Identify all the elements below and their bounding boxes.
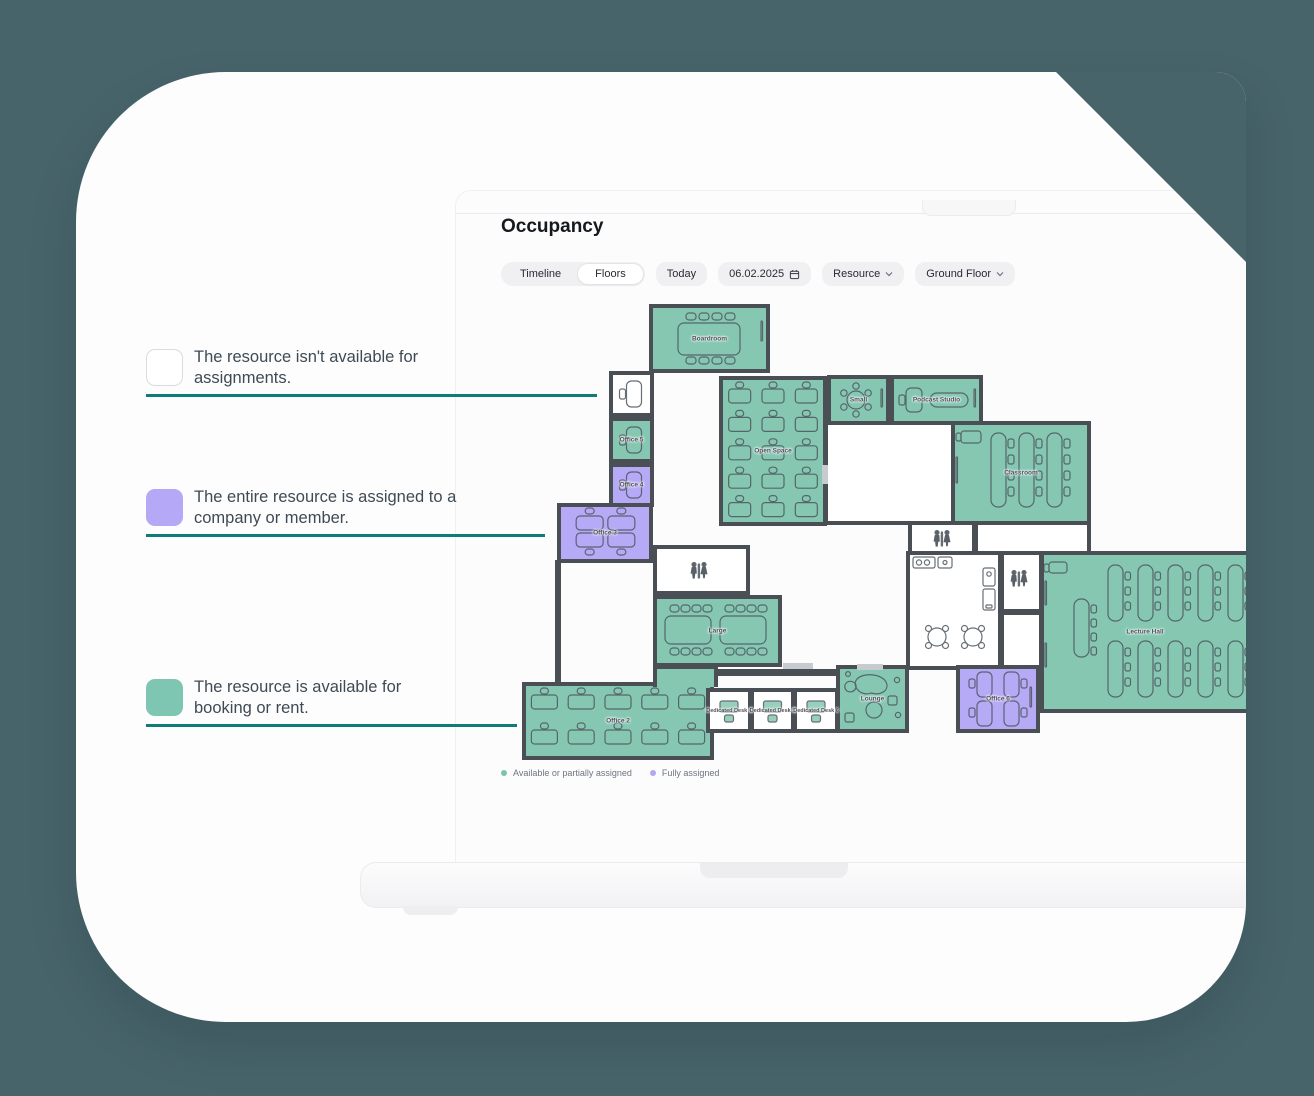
tab-floors[interactable]: Floors [578,264,643,284]
room-wc-1[interactable] [908,521,976,555]
legend-dot-assigned [650,770,656,776]
marketing-card: Occupancy Timeline Floors Today 06.02.20… [76,72,1246,1022]
room-open-space[interactable]: Open Space [719,376,827,526]
calendar-icon [789,269,800,280]
room-room-unavailable[interactable] [609,371,654,417]
room-boardroom[interactable]: Boardroom [649,304,770,373]
pointer-line [146,534,545,537]
today-button[interactable]: Today [656,262,707,286]
laptop-lid-notch [700,863,848,878]
pointer-line [146,394,597,397]
chevron-down-icon [885,270,893,278]
resource-label: Resource [833,268,880,280]
room-office-5[interactable]: Office 5 [609,417,654,463]
room-large[interactable]: Large [653,595,782,667]
date-picker[interactable]: 06.02.2025 [718,262,811,286]
camera-notch [922,200,1016,216]
legend-label: Available or partially assigned [513,768,632,778]
today-label: Today [667,268,696,280]
chevron-down-icon [996,270,1004,278]
room-wc-2[interactable] [1000,551,1043,613]
room-kitchen[interactable] [906,551,1002,670]
annotation-available-text: The resource is available for booking or… [194,677,429,719]
room-podcast-studio[interactable]: Podcast Studio [890,375,983,425]
room-small[interactable]: Small [827,375,890,425]
room-dedicated-desk-4[interactable]: Dedicated Desk 4 [706,688,752,733]
date-value: 06.02.2025 [729,268,784,280]
floor-dropdown[interactable]: Ground Floor [915,262,1015,286]
room-hall-2[interactable] [1000,611,1043,670]
floor-label: Ground Floor [926,268,991,280]
annotation-assigned-text: The entire resource is assigned to a com… [194,487,479,529]
room-lounge[interactable]: Lounge [836,665,909,733]
pointer-line [146,724,517,727]
annotation-unavailable-text: The resource isn't available for assignm… [194,347,439,389]
legend-item-available: Available or partially assigned [501,768,632,778]
room-classroom[interactable]: Classroom [951,421,1091,525]
room-dedicated-desk-6[interactable]: Dedicated Desk 6 [793,688,839,733]
room-stair-link[interactable] [653,665,718,687]
hero-background: Occupancy Timeline Floors Today 06.02.20… [0,0,1314,1096]
toolbar: Timeline Floors Today 06.02.2025 [501,262,1015,286]
resource-dropdown[interactable]: Resource [822,262,904,286]
room-hall-right[interactable] [974,521,1091,555]
legend-item-assigned: Fully assigned [650,768,720,778]
tab-timeline[interactable]: Timeline [503,264,578,284]
room-hall-mid[interactable] [824,421,955,525]
window-top-divider [456,213,1246,214]
legend: Available or partially assigned Fully as… [501,768,719,778]
room-lecture-hall[interactable]: Lecture Hall [1040,551,1246,713]
legend-label: Fully assigned [662,768,720,778]
legend-dot-available [501,770,507,776]
room-office-6[interactable]: Office 6 [956,665,1040,733]
swatch-unavailable [146,349,183,386]
page-title: Occupancy [501,216,603,238]
swatch-available [146,679,183,716]
laptop-foot [403,906,458,915]
room-office-3[interactable]: Office 3 [557,503,653,563]
room-wc-3[interactable] [653,545,750,595]
room-dedicated-desk-5[interactable]: Dedicated Desk 5 [750,688,795,733]
room-office-4[interactable]: Office 4 [609,463,654,507]
swatch-assigned [146,489,183,526]
view-segmented-control: Timeline Floors [501,262,645,286]
room-office-2[interactable]: Office 2 [522,682,714,760]
